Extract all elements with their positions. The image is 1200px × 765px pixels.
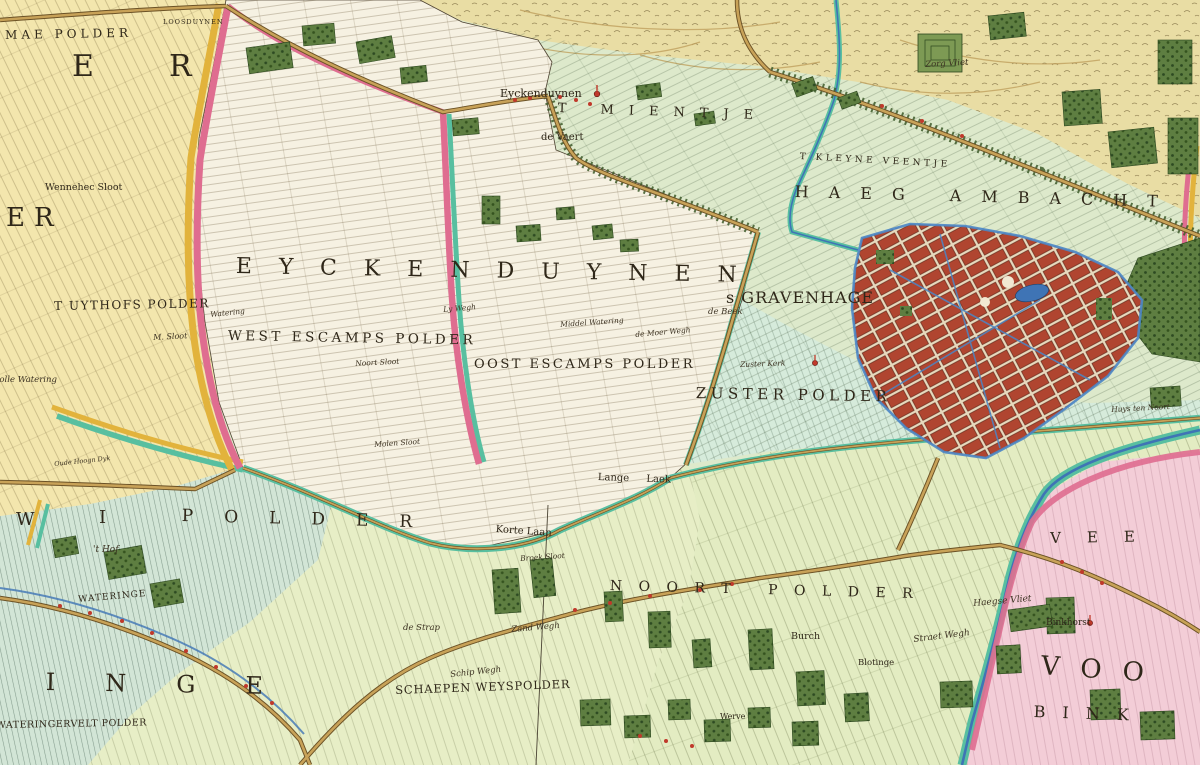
region-label-mae-polder: MAE POLDER	[5, 27, 132, 41]
region-label-zuster-polder: ZUSTER POLDER	[696, 386, 892, 404]
place-label-de-beek: de Beek	[708, 308, 743, 317]
place-label-eyckenduynen-village: Eyckenduynen	[500, 88, 582, 99]
city-label-gravenhage: s GRAVENHAGE	[726, 290, 874, 306]
place-label-holle-watering: Holle Watering	[0, 376, 57, 385]
region-label-wateringervelt: WATERINGERVELT POLDER	[0, 718, 147, 730]
historical-map-canvas: EYCKENDUYNEN HAEG AMBACHT T MIENTJE T KL…	[0, 0, 1200, 765]
place-label-werve: Werve	[720, 713, 745, 721]
letter-fragment-er: ER	[6, 205, 63, 231]
letter-fragment-w: W	[16, 511, 35, 529]
place-label-de-strap: de Strap	[403, 624, 440, 633]
label-loosduynen: LOOSDUYNEN	[163, 19, 224, 26]
region-label-oost-escamps: OOST ESCAMPS POLDER	[474, 358, 695, 371]
letter-fragment-r: R	[169, 52, 192, 82]
place-label-burch: Burch	[791, 632, 820, 642]
place-label-de-vaert: de Vaert	[541, 133, 583, 143]
place-label-binkhorst: Binkhorst	[1046, 619, 1091, 628]
letter-fragment-bink: BINK	[1033, 704, 1146, 724]
place-label-noort-sloot: Noort Sloot	[355, 358, 400, 368]
place-label-t-hof: 't Hof	[93, 546, 119, 555]
region-label-uythofs-polder: T UYTHOFS POLDER	[54, 297, 210, 312]
letter-fragment-e: E	[72, 52, 94, 82]
letter-fragment-inge: INGE	[46, 670, 314, 699]
place-label-zuster-kerk: Zuster Kerk	[740, 359, 786, 368]
place-label-wennehec-sloot: Wennehec Sloot	[45, 183, 122, 193]
letter-fragment-vee: VEE	[1050, 529, 1161, 546]
place-label-blotinge: Blotinge	[858, 659, 894, 668]
letter-fragment-i: I	[99, 509, 106, 527]
place-label-zorg-vliet: Zorg Vliet	[925, 59, 969, 70]
